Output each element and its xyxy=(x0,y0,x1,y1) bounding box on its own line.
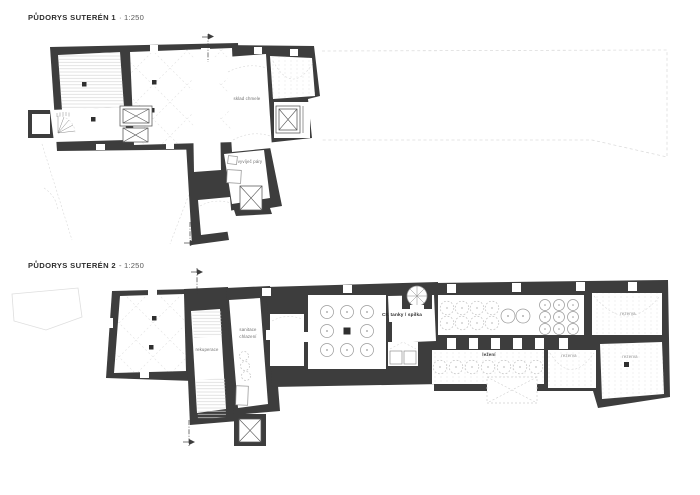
drawing-sheet: PŮDORYS SUTERÉN 1· 1:250 xyxy=(0,0,700,495)
room-service xyxy=(50,107,127,142)
elevator-core xyxy=(274,102,310,138)
building-outline-dashed xyxy=(322,50,667,157)
room-label-rezerva-mid: rezerva xyxy=(561,353,577,358)
room-label-ck-tanky: CK tanky / spilka xyxy=(382,312,422,317)
room-label-rekuperace: rekuperace xyxy=(196,347,219,352)
floor-plans-canvas: PŮDORYS SUTERÉN 1· 1:250 xyxy=(0,0,700,495)
room-label-sklad-chmele: sklad chmele xyxy=(234,96,261,101)
plan2-title-text: PŮDORYS SUTERÉN 2 xyxy=(28,260,116,270)
room-label-chlazeni: chlazení xyxy=(239,334,257,339)
lightwell-icon xyxy=(487,377,537,403)
plan2-title: PŮDORYS SUTERÉN 2- 1:250 xyxy=(28,260,144,270)
plan1-drawing: PŮDORYS SUTERÉN 1· 1:250 xyxy=(28,12,667,247)
room-corridor-2 xyxy=(270,314,304,366)
room-top-band xyxy=(438,295,584,335)
room-label-vyvijec-pary: vyvíječ páry xyxy=(238,159,263,164)
ck-tanks xyxy=(321,306,374,357)
light-shaft-icon xyxy=(240,186,262,210)
room-top-right xyxy=(270,56,315,99)
room-label-lezeni: ležení xyxy=(482,352,496,357)
plan1-title-text: PŮDORYS SUTERÉN 1 xyxy=(28,12,116,22)
site-outline-faint xyxy=(12,288,82,330)
room-rezerva-right xyxy=(600,342,664,399)
site-boundary-lines xyxy=(42,144,196,244)
room-label-rezerva-top: rezerva xyxy=(620,311,636,316)
elevator-shaft-icon xyxy=(120,106,152,142)
plan1-title: PŮDORYS SUTERÉN 1· 1:250 xyxy=(28,12,144,22)
band-tanks-grid xyxy=(540,300,579,335)
room-ck-tanks xyxy=(308,295,386,369)
room-bottom-tip xyxy=(198,197,233,235)
plan2-scale-text: - 1:250 xyxy=(119,261,144,270)
light-shaft-icon-2 xyxy=(239,419,261,442)
room-hatched-stair xyxy=(58,52,124,110)
room-label-sanitace: sanitace xyxy=(239,327,257,332)
alcove-room xyxy=(32,114,50,134)
plan1-scale-text: · 1:250 xyxy=(119,13,144,22)
room-label-rezerva-right: rezerva xyxy=(622,354,638,359)
plan2-drawing: PŮDORYS SUTERÉN 2- 1:250 xyxy=(12,260,670,446)
spiral-staircase-icon xyxy=(402,283,432,313)
chevron-room xyxy=(388,342,418,366)
room-vaulted-2 xyxy=(114,294,186,373)
room-sklad-chmele xyxy=(226,54,272,152)
corridor-room xyxy=(192,57,221,172)
